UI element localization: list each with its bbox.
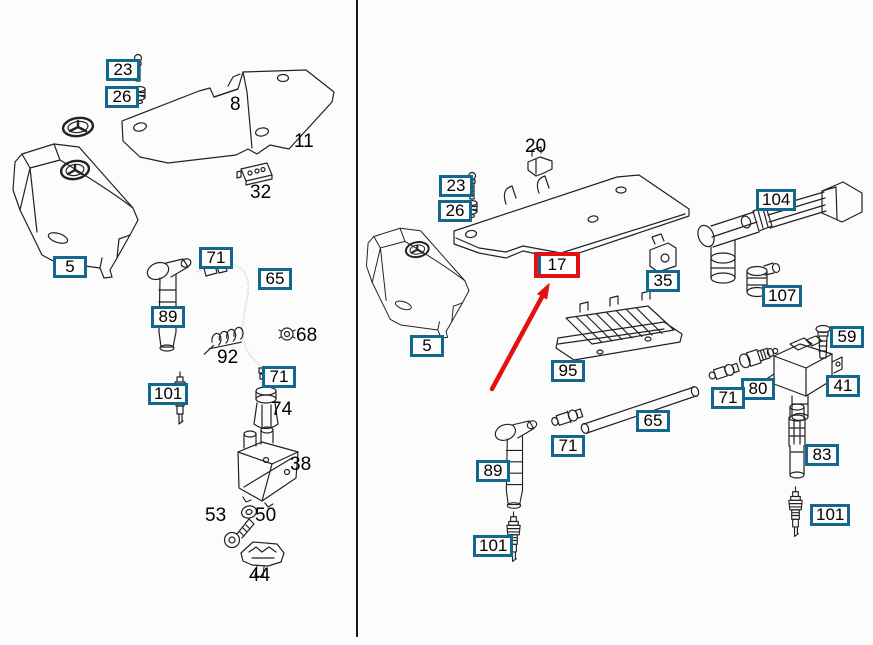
- ignition-module-95: [556, 291, 682, 360]
- part-label-left-68: 68: [296, 325, 317, 347]
- part-label-left-8: 8: [230, 94, 241, 116]
- part-label-left-92: 92: [217, 347, 238, 369]
- spark-plug-101-right: [789, 487, 802, 536]
- part-label-right-26[interactable]: 26: [438, 200, 472, 222]
- part-label-right-104[interactable]: 104: [756, 189, 796, 211]
- part-label-right-71-a[interactable]: 71: [711, 387, 745, 409]
- part-label-left-38: 38: [290, 454, 311, 476]
- part-label-right-17-highlighted[interactable]: 17: [534, 252, 580, 278]
- part-label-left-89[interactable]: 89: [151, 306, 185, 328]
- part-label-left-44: 44: [249, 565, 270, 587]
- panel-divider: [356, 0, 358, 637]
- part-label-right-101-b[interactable]: 101: [810, 504, 850, 526]
- star-emblem-8: [62, 116, 94, 138]
- part-label-right-101-a[interactable]: 101: [473, 535, 513, 557]
- part-label-right-83[interactable]: 83: [805, 444, 839, 466]
- part-label-left-5[interactable]: 5: [53, 256, 87, 278]
- part-label-right-95[interactable]: 95: [551, 360, 585, 382]
- coil-boot-83: [789, 404, 805, 478]
- part-label-left-71-top[interactable]: 71: [199, 247, 233, 269]
- part-label-left-11: 11: [294, 131, 314, 153]
- part-label-left-50: 50: [255, 505, 276, 527]
- part-label-right-35[interactable]: 35: [646, 270, 680, 292]
- clip-35: [650, 234, 676, 272]
- part-label-right-20: 20: [525, 136, 546, 158]
- part-label-left-23[interactable]: 23: [106, 59, 140, 81]
- part-label-right-71-b[interactable]: 71: [551, 435, 585, 457]
- part-label-left-26[interactable]: 26: [105, 86, 139, 108]
- part-label-right-59[interactable]: 59: [830, 326, 864, 348]
- ignition-coil-38: [238, 427, 298, 507]
- screw-53: [225, 519, 255, 548]
- part-label-left-65[interactable]: 65: [258, 268, 292, 290]
- connector-71-rod-left: [550, 407, 583, 428]
- plug-connector-89-left: [145, 257, 192, 351]
- connector-71-rod-right: [708, 362, 740, 382]
- part-label-left-101[interactable]: 101: [148, 383, 188, 405]
- part-label-left-53: 53: [205, 505, 226, 527]
- part-label-left-74: 74: [271, 399, 292, 421]
- part-label-left-32: 32: [250, 182, 271, 204]
- nut-68: [279, 328, 295, 340]
- part-label-right-65[interactable]: 65: [636, 410, 670, 432]
- part-label-right-89[interactable]: 89: [476, 460, 510, 482]
- part-label-right-80[interactable]: 80: [741, 378, 775, 400]
- part-label-right-23[interactable]: 23: [439, 175, 473, 197]
- engine-cover-5-right: [366, 228, 469, 338]
- part-label-right-41[interactable]: 41: [826, 375, 860, 397]
- highlight-arrow: [492, 284, 549, 389]
- parts-diagram-canvas: 23 26 8 11 32 5 71 65 89 92 68 71 101 74…: [0, 0, 873, 645]
- cover-panel-17: [454, 175, 689, 259]
- part-label-left-71-lower[interactable]: 71: [262, 366, 296, 388]
- part-label-right-5[interactable]: 5: [410, 335, 444, 357]
- part-label-right-107[interactable]: 107: [762, 285, 802, 307]
